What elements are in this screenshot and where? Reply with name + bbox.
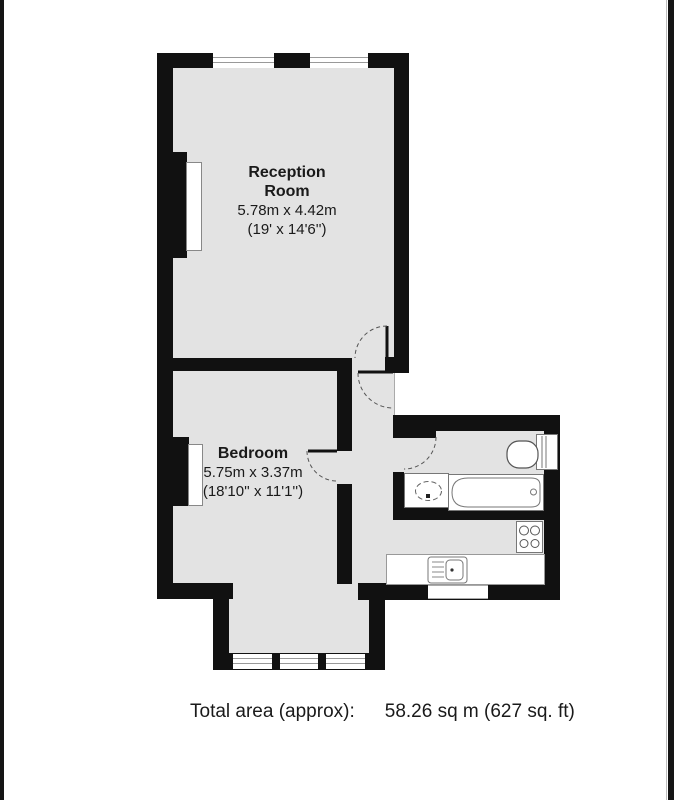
left-edge-bar (0, 0, 4, 800)
kitchen-window-icon (428, 585, 488, 599)
wall-bathroom-top (393, 415, 560, 431)
bay-window-3-icon (326, 654, 365, 669)
reception-name-line1: Reception (197, 163, 377, 182)
hob-icon (516, 521, 543, 553)
wall-bedroom-bottom-left (157, 583, 233, 599)
reception-dimensions-metric: 5.78m x 4.42m (197, 201, 377, 220)
right-edge-bar (668, 0, 674, 800)
wall-top (157, 53, 409, 68)
bay-window-1-icon (233, 654, 272, 669)
total-area-label: Total area (approx): (190, 701, 355, 723)
bedroom-dimensions-metric: 5.75m x 3.37m (163, 463, 343, 482)
bathroom-door-leaf (403, 430, 436, 438)
reception-window-1-icon (213, 53, 274, 68)
wall-bathroom-door-stub (393, 415, 403, 438)
reception-name-line2: Room (197, 182, 377, 201)
bathtub-icon (448, 474, 544, 511)
bay-window-2-icon (280, 654, 318, 669)
reception-window-2-icon (310, 53, 368, 68)
wall-reception-right (394, 53, 409, 373)
right-edge-line (666, 0, 667, 800)
wall-left (157, 53, 173, 599)
total-area-value: 58.26 sq m (627 sq. ft) (385, 701, 575, 723)
reception-room-label: Reception Room 5.78m x 4.42m (19' x 14'6… (197, 163, 377, 239)
bedroom-label: Bedroom 5.75m x 3.37m (18'10'' x 11'1'') (163, 444, 343, 501)
bedroom-dimensions-imperial: (18'10'' x 11'1'') (163, 482, 343, 501)
kitchen-counter-icon (386, 554, 545, 585)
wall-step (385, 357, 394, 373)
total-area-footer: Total area (approx): 58.26 sq m (627 sq.… (190, 701, 575, 723)
reception-chimney-pier (173, 152, 187, 258)
wall-divider (157, 358, 352, 371)
wall-bedroom-right-upper (337, 358, 352, 451)
basin-counter-icon (404, 473, 449, 508)
wall-bathroom-left-lower (393, 472, 404, 510)
reception-dimensions-imperial: (19' x 14'6'') (197, 220, 377, 239)
floor-plan-page: Reception Room 5.78m x 4.42m (19' x 14'6… (0, 0, 674, 800)
bedroom-name: Bedroom (163, 444, 343, 463)
bay-floor (229, 583, 369, 653)
toilet-cistern-icon (536, 434, 558, 470)
